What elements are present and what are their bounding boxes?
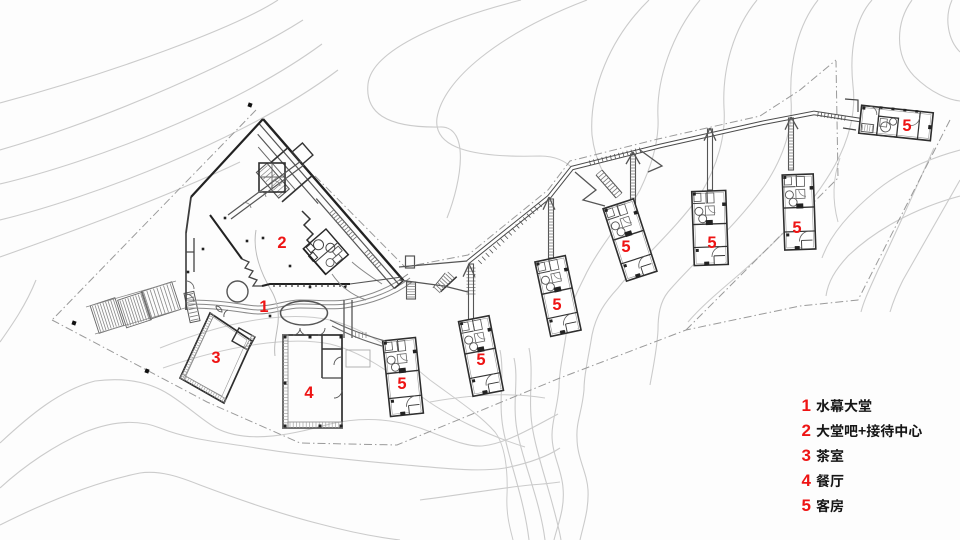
svg-text:3: 3 — [802, 446, 811, 465]
svg-text:5: 5 — [476, 351, 485, 369]
svg-text:2: 2 — [277, 234, 286, 252]
svg-text:5: 5 — [621, 238, 630, 256]
svg-text:1: 1 — [802, 396, 811, 415]
svg-text:5: 5 — [792, 219, 801, 237]
svg-text:5: 5 — [902, 117, 911, 135]
svg-text:2: 2 — [802, 421, 811, 440]
svg-text:5: 5 — [397, 375, 406, 393]
svg-text:5: 5 — [552, 296, 561, 314]
svg-text:5: 5 — [802, 496, 811, 515]
svg-text:4: 4 — [802, 471, 812, 490]
svg-text:1: 1 — [259, 298, 268, 316]
svg-text:4: 4 — [304, 384, 314, 402]
svg-text:5: 5 — [707, 234, 716, 252]
svg-text:3: 3 — [211, 349, 220, 367]
